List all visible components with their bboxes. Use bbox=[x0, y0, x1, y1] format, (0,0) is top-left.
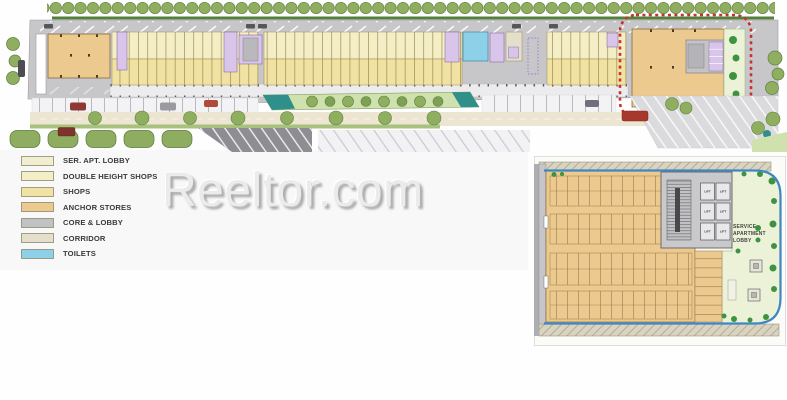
lift-label: LIFT bbox=[704, 190, 710, 194]
legend-label: SHOPS bbox=[63, 187, 90, 196]
legend: SER. APT. LOBBY DOUBLE HEIGHT SHOPS SHOP… bbox=[21, 153, 157, 262]
service-rooms bbox=[506, 32, 522, 61]
lobby-core bbox=[445, 32, 459, 62]
legend-item: TOILETS bbox=[21, 246, 157, 262]
site-plan bbox=[0, 0, 787, 155]
legend-swatch bbox=[22, 172, 54, 181]
car bbox=[204, 100, 218, 107]
anchor-store-left bbox=[48, 34, 110, 78]
car bbox=[160, 103, 176, 111]
lift-label: LIFT bbox=[720, 190, 726, 194]
legend-item: SER. APT. LOBBY bbox=[21, 153, 157, 169]
legend-swatch bbox=[22, 203, 54, 212]
shops-band-center bbox=[264, 32, 462, 85]
legend-swatch bbox=[22, 249, 54, 258]
legend-item: ANCHOR STORES bbox=[21, 200, 157, 216]
shops-band-east bbox=[547, 32, 626, 85]
lift-label: LIFT bbox=[704, 210, 710, 214]
lobby-label-line: APARTMENT bbox=[733, 231, 766, 237]
bus bbox=[622, 111, 648, 121]
bus bbox=[18, 60, 25, 77]
lobby-core bbox=[490, 33, 504, 62]
legend-swatch bbox=[22, 187, 54, 196]
watermark: Reeltor.com bbox=[162, 163, 424, 218]
lift-label: LIFT bbox=[720, 210, 726, 214]
car bbox=[70, 103, 86, 111]
lobby-core bbox=[607, 33, 618, 47]
stairs bbox=[688, 44, 704, 68]
lift-label: LIFT bbox=[704, 230, 710, 234]
car bbox=[58, 128, 75, 137]
legend-item: SHOPS bbox=[21, 184, 157, 200]
legend-item: DOUBLE HEIGHT SHOPS bbox=[21, 169, 157, 185]
legend-label: CORE & LOBBY bbox=[63, 218, 123, 227]
legend-label: CORRIDOR bbox=[63, 234, 106, 243]
legend-label: DOUBLE HEIGHT SHOPS bbox=[63, 172, 157, 181]
floor-plan-page: SER. APT. LOBBY DOUBLE HEIGHT SHOPS SHOP… bbox=[0, 0, 787, 400]
legend-item: CORE & LOBBY bbox=[21, 215, 157, 231]
legend-item: CORRIDOR bbox=[21, 231, 157, 247]
legend-label: ANCHOR STORES bbox=[63, 203, 131, 212]
landscape-strip bbox=[263, 92, 479, 110]
anchor-store-right bbox=[632, 29, 745, 107]
toilets-block bbox=[463, 32, 488, 61]
hedge-row bbox=[10, 128, 192, 148]
rooms-column bbox=[695, 251, 722, 322]
legend-swatch bbox=[22, 156, 54, 165]
entry-canopy bbox=[36, 34, 46, 94]
car bbox=[585, 100, 599, 107]
inset-floor-plan: LIFT LIFT LIFT LIFT LIFT LIFT SERVICE AP… bbox=[534, 156, 786, 346]
lift-label: LIFT bbox=[720, 230, 726, 234]
core-block: LIFT LIFT LIFT LIFT LIFT LIFT bbox=[661, 172, 732, 248]
legend-swatch bbox=[22, 234, 54, 243]
legend-label: TOILETS bbox=[63, 249, 96, 258]
lobby-label-line: SERVICE bbox=[733, 224, 757, 230]
lobby-label-line: LOBBY bbox=[733, 238, 752, 244]
lobby-core bbox=[117, 32, 127, 70]
legend-label: SER. APT. LOBBY bbox=[63, 156, 130, 165]
legend-swatch bbox=[22, 218, 54, 227]
